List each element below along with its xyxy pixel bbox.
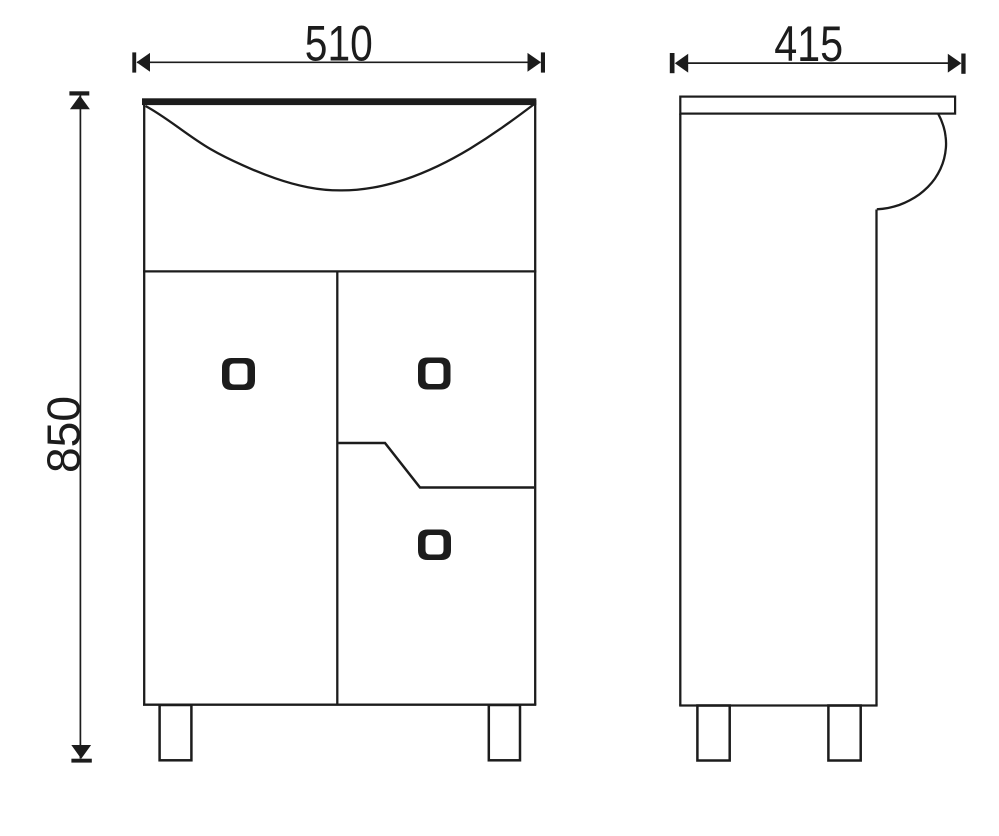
svg-text:850: 850 [38, 396, 90, 473]
